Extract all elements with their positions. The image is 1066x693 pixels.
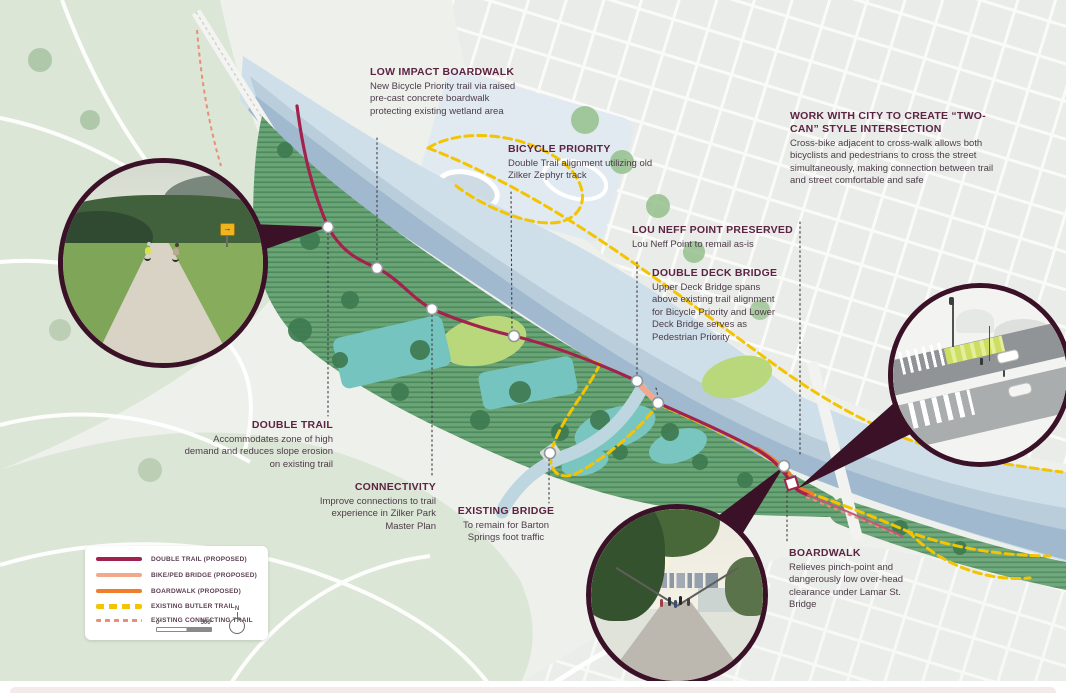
callout-body: Cross-bike adjacent to cross-walk allows…	[790, 138, 1005, 188]
render-signal-head	[949, 297, 954, 305]
legend-row: DOUBLE TRAIL (PROPOSED)	[96, 555, 247, 563]
boardwalk-proposed-swatch	[96, 589, 142, 593]
callout-title: LOW IMPACT BOARDWALK	[370, 66, 532, 79]
callout-title: BICYCLE PRIORITY	[508, 143, 660, 156]
photo-cyclist-2-head	[175, 243, 179, 247]
north-dial	[229, 618, 245, 634]
existing-connecting-trail-swatch	[96, 619, 142, 622]
callout-title: DOUBLE TRAIL	[183, 419, 333, 432]
callout-body: Double Trail alignment utilizing old Zil…	[508, 158, 660, 183]
photo-cyclist-1	[145, 247, 151, 254]
legend-row: BOARDWALK (PROPOSED)	[96, 587, 241, 595]
render-pedestrian	[980, 358, 983, 365]
inset-photo-boardwalk	[586, 504, 768, 686]
callout-title: BOARDWALK	[789, 547, 914, 560]
photo-cyclist-1-bike	[144, 254, 151, 261]
north-label: N	[228, 606, 246, 612]
callout-title: WORK WITH CITY TO CREATE “TWO-CAN” STYLE…	[790, 110, 990, 136]
legend-row: BIKE/PED BRIDGE (PROPOSED)	[96, 571, 257, 579]
inset-photo-double-trail-cyclists: →	[58, 158, 268, 368]
legend-label: BOARDWALK (PROPOSED)	[151, 588, 241, 595]
photo-pedestrian	[679, 596, 682, 605]
callout-body: Accommodates zone of high demand and red…	[183, 434, 333, 472]
photo-cyclist-1-helmet	[147, 242, 151, 246]
callout-boardwalk: BOARDWALK Relieves pinch-point and dange…	[789, 547, 914, 612]
photo-cyclist-2-bike	[172, 255, 179, 262]
bottom-page-bar	[10, 687, 1056, 693]
legend-label: BIKE/PED BRIDGE (PROPOSED)	[151, 572, 257, 579]
legend-label: EXISTING BUTLER TRAIL	[151, 603, 235, 610]
callout-body: Relieves pinch-point and dangerously low…	[789, 562, 914, 612]
north-arrow: N	[228, 606, 246, 634]
callout-low-impact-boardwalk: LOW IMPACT BOARDWALK New Bicycle Priorit…	[370, 66, 532, 118]
callout-existing-bridge: EXISTING BRIDGE To remain for Barton Spr…	[450, 505, 562, 545]
photo-trail-sign: →	[220, 223, 235, 236]
callout-body: To remain for Barton Springs foot traffi…	[450, 520, 562, 545]
callout-double-deck-bridge: DOUBLE DECK BRIDGE Upper Deck Bridge spa…	[652, 267, 784, 344]
callout-body: Improve connections to trail experience …	[304, 496, 436, 534]
double-trail-proposed-swatch	[96, 557, 142, 561]
render-signal-pole	[952, 302, 954, 347]
trail-master-plan-map: LOW IMPACT BOARDWALK New Bicycle Priorit…	[0, 0, 1066, 693]
photo-sign-post	[226, 235, 228, 247]
callout-lou-neff-point: LOU NEFF POINT PRESERVED Lou Neff Point …	[632, 224, 817, 251]
inset-render-two-can-intersection	[888, 283, 1066, 467]
photo-pedestrian	[660, 599, 663, 607]
legend-row: EXISTING BUTLER TRAIL	[96, 602, 235, 610]
legend: DOUBLE TRAIL (PROPOSED) BIKE/PED BRIDGE …	[85, 546, 268, 640]
scale-bar-graphic	[156, 627, 212, 632]
photo-pedestrian	[674, 600, 677, 608]
photo-trees-right	[725, 557, 768, 615]
legend-label: DOUBLE TRAIL (PROPOSED)	[151, 556, 247, 563]
photo-cyclist-2	[173, 248, 179, 255]
callout-body: Lou Neff Point to remail as-is	[632, 239, 817, 252]
scale-start-label: 0'	[156, 620, 161, 626]
callout-title: EXISTING BRIDGE	[450, 505, 562, 518]
render-pedestrian	[1003, 370, 1006, 377]
bike-ped-bridge-proposed-swatch	[96, 573, 142, 577]
callout-title: DOUBLE DECK BRIDGE	[652, 267, 784, 280]
intersection-marker	[785, 476, 799, 490]
photo-pedestrian	[668, 597, 671, 606]
callout-title: LOU NEFF POINT PRESERVED	[632, 224, 817, 237]
existing-butler-trail-swatch	[96, 604, 142, 609]
scale-bar: 0' 500'	[156, 620, 212, 632]
callout-body: New Bicycle Priority trail via raised pr…	[370, 81, 532, 119]
scale-end-label: 500'	[201, 620, 212, 626]
callout-bicycle-priority: BICYCLE PRIORITY Double Trail alignment …	[508, 143, 660, 183]
callout-body: Upper Deck Bridge spans above existing t…	[652, 282, 784, 345]
callout-double-trail: DOUBLE TRAIL Accommodates zone of high d…	[183, 419, 333, 471]
callout-title: CONNECTIVITY	[304, 481, 436, 494]
callout-connectivity: CONNECTIVITY Improve connections to trai…	[304, 481, 436, 533]
render-signal-pole	[989, 326, 991, 361]
callout-two-can-intersection: WORK WITH CITY TO CREATE “TWO-CAN” STYLE…	[790, 110, 1005, 188]
